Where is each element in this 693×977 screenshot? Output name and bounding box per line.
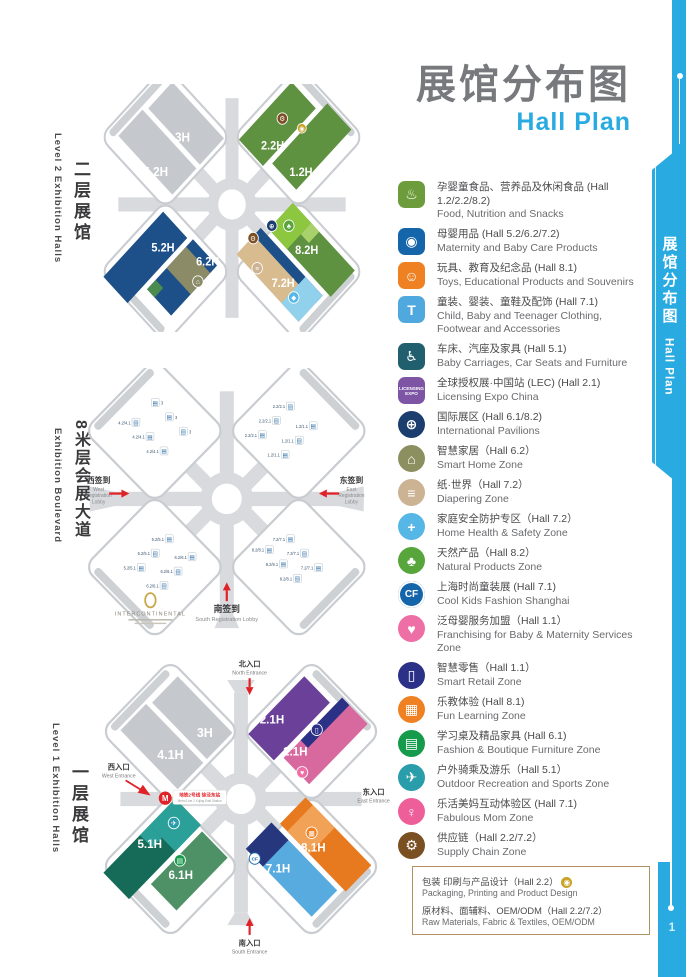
escalator-icon: ▤ <box>302 551 307 557</box>
legend-item-zh: 供应链（Hall 2.2/7.2） <box>437 832 543 846</box>
natural-products-icon: ♣ <box>398 547 425 574</box>
international-pavilions-icon: ⊕ <box>398 411 425 438</box>
legend-item-en: Cool Kids Fashion Shanghai <box>437 595 570 608</box>
escalator-chip-label: 6.2/6.1 <box>146 583 159 588</box>
smart-retail-icon: ▯ <box>398 662 425 689</box>
legend-item: ⊕ 国际展区 (Hall 6.1/8.2) International Pavi… <box>398 411 638 438</box>
legend-item-en: Baby Carriages, Car Seats and Furniture <box>437 357 627 370</box>
legend-item: ◉ 母婴用品 (Hall 5.2/6.2/7.2) Maternity and … <box>398 228 638 255</box>
escalator-chip-label: 7.2/7.1 <box>287 551 300 556</box>
footprint <box>99 660 381 940</box>
hall-label-3h: 3H <box>197 726 213 740</box>
legend-item-zh: 泛母婴服务加盟（Hall 1.1） <box>437 615 638 629</box>
legend-item-en: Toys, Educational Products and Souvenirs <box>437 276 634 289</box>
fun-learning-icon: ▦ <box>398 696 425 723</box>
legend-item: ✈ 户外骑乘及游乐（Hall 5.1） Outdoor Recreation a… <box>398 764 638 791</box>
page-title: 展馆分布图 Hall Plan <box>416 64 631 137</box>
escalator-icon: ▤ <box>260 433 265 439</box>
escalator-icon: ▤ <box>153 551 158 557</box>
hall-label-11h: 1.1H <box>283 744 308 758</box>
legend-item: ≡ 纸·世界（Hall 7.2） Diapering Zone <box>398 479 638 506</box>
hall-label-3h: 3H <box>175 130 190 145</box>
escalator-icon: ▤ <box>139 566 144 572</box>
east-registration-zh: 东签到 <box>340 475 364 485</box>
escalator-icon: ▤ <box>288 537 293 543</box>
metro-station-en: Metro Line 2 Xujing East Station <box>178 799 222 803</box>
food-icon: ♨ <box>398 181 425 208</box>
escalator-icon: ▤ <box>167 415 172 421</box>
south-registration-en: South Registration Lobby <box>195 617 258 623</box>
legend-item: ⌂ 智慧家居（Hall 6.2） Smart Home Zone <box>398 445 638 472</box>
supply-chain-icon: ⚙ <box>398 832 425 859</box>
materials-note-en: Raw Materials, Fabric & Textiles, OEM/OD… <box>422 917 640 927</box>
legend-item: + 家庭安全防护专区（Hall 7.2） Home Health & Safet… <box>398 513 638 540</box>
legend-item: ♿ 车床、汽座及家具 (Hall 5.1) Baby Carriages, Ca… <box>398 343 638 370</box>
legend-item-zh: 车床、汽座及家具 (Hall 5.1) <box>437 343 627 357</box>
hall-label-52h: 5.2H <box>151 242 174 255</box>
escalator-icon: ▤ <box>175 569 180 575</box>
escalator-icon: ▤ <box>288 404 293 410</box>
level2-label-en: Level 2 Exhibition Halls <box>52 133 63 263</box>
escalator-chip-label: 7.2/7.1 <box>301 566 314 571</box>
hall-label-42h: 4.2H <box>143 165 168 180</box>
hall-label-82h: 8.2H <box>295 245 318 258</box>
escalator-icon: ▤ <box>181 429 186 435</box>
escalator-chip-label: 4.2/4.1 <box>132 435 145 440</box>
escalator-icon: ▤ <box>161 449 166 455</box>
side-tab-en: Hall Plan <box>663 338 675 396</box>
svg-text:⌂: ⌂ <box>196 279 200 286</box>
svg-text:♣: ♣ <box>287 223 292 230</box>
level2-map: 3H 4.2H 2.2H 1.2H 5.2H 6.2H 8.2H 7.2H ⚙ … <box>94 84 370 332</box>
hall-label-72h: 7.2H <box>272 277 295 290</box>
legend-item-zh: 玩具、教育及纪念品 (Hall 8.1) <box>437 262 634 276</box>
svg-text:M: M <box>162 794 169 803</box>
level1-map: 3H 4.1H 2.1H 1.1H 5.1H 6.1H 8.1H 7.1H ▯ … <box>86 656 396 958</box>
escalator-chip-label: 4.2/4.1 <box>118 420 131 425</box>
clothing-icon: T <box>398 296 425 323</box>
legend-item-en: Franchising for Baby & Maternity Service… <box>437 629 638 655</box>
svg-text:✈: ✈ <box>171 821 177 828</box>
legend-item-zh: 全球授权展·中国站 (LEC) (Hall 2.1) <box>437 377 600 391</box>
side-strip-line <box>679 78 681 144</box>
escalator-icon: ▤ <box>161 584 166 590</box>
south-entrance-zh: 南入口 <box>239 937 261 947</box>
cool-kids-fashion-icon: CF <box>398 581 425 608</box>
hall-label-12h: 1.2H <box>289 167 312 180</box>
legend-item: ♣ 天然产品（Hall 8.2） Natural Products Zone <box>398 547 638 574</box>
legend-item-en: Smart Home Zone <box>437 459 536 472</box>
legend-item-en: International Pavilions <box>437 425 542 438</box>
escalator-chip-label: 2.2/2.1 <box>259 418 272 423</box>
hall-label-21h: 2.1H <box>260 712 285 726</box>
escalator-icon: ▤ <box>311 424 316 430</box>
svg-text:Lobby: Lobby <box>92 499 106 505</box>
escalator-chip-label: 1.2/1.1 <box>268 453 281 458</box>
legend-item-zh: 家庭安全防护专区（Hall 7.2） <box>437 513 578 527</box>
legend-item-zh: 智慧家居（Hall 6.2） <box>437 445 536 459</box>
svg-text:⚙: ⚙ <box>279 116 285 123</box>
svg-text:East: East <box>347 487 357 493</box>
svg-text:CF: CF <box>252 857 258 863</box>
maternity-care-icon: ◉ <box>398 228 425 255</box>
legend-item-zh: 孕婴童食品、营养品及休闲食品 (Hall 1.2/2.2/8.2) <box>437 181 638 208</box>
escalator-icon: ▤ <box>267 548 272 554</box>
legend-item: ☺ 玩具、教育及纪念品 (Hall 8.1) Toys, Educational… <box>398 262 638 289</box>
legend-item-zh: 母婴用品 (Hall 5.2/6.2/7.2) <box>437 228 598 242</box>
legend-item: ♨ 孕婴童食品、营养品及休闲食品 (Hall 1.2/2.2/8.2) Food… <box>398 181 638 221</box>
legend-items: ♨ 孕婴童食品、营养品及休闲食品 (Hall 1.2/2.2/8.2) Food… <box>398 181 638 859</box>
legend-item-en: Maternity and Baby Care Products <box>437 242 598 255</box>
legend-item: T 童装、婴装、童鞋及配饰 (Hall 7.1) Child, Baby and… <box>398 296 638 336</box>
level1-label-en: Level 1 Exhibition Halls <box>50 723 61 853</box>
escalator-icon: ▤ <box>316 566 321 572</box>
packaging-icon: ◉ <box>561 877 572 888</box>
legend-item-en: Supply Chain Zone <box>437 846 543 859</box>
svg-text:West: West <box>93 487 105 493</box>
legend: ♨ 孕婴童食品、营养品及休闲食品 (Hall 1.2/2.2/8.2) Food… <box>398 181 638 935</box>
packaging-note-en: Packaging, Printing and Product Design <box>422 888 640 898</box>
hall-label-41h: 4.1H <box>157 748 183 762</box>
outdoor-recreation-icon: ✈ <box>398 764 425 791</box>
svg-text:≡: ≡ <box>255 266 259 273</box>
legend-item-zh: 学习桌及精品家具 (Hall 6.1) <box>437 730 600 744</box>
svg-text:♥: ♥ <box>300 770 304 777</box>
escalator-chip-label: 2.2/2.1 <box>273 404 286 409</box>
west-entrance-zh: 西入口 <box>108 763 130 772</box>
hall-label-22h: 2.2H <box>261 140 284 153</box>
hall-label-62h: 6.2H <box>196 256 219 269</box>
svg-text:Registration: Registration <box>338 493 364 499</box>
legend-item-en: Fabulous Mom Zone <box>437 812 577 825</box>
escalator-icon: ▤ <box>189 555 194 561</box>
legend-item-zh: 乐教体验 (Hall 8.1) <box>437 696 526 710</box>
legend-item-en: Fashion & Boutique Furniture Zone <box>437 744 600 757</box>
hall-label-51h: 5.1H <box>137 837 162 851</box>
escalator-icon: ▤ <box>167 537 172 543</box>
hall-label-71h: 7.1H <box>266 862 291 876</box>
escalator-chip-label: 2.2/2.1 <box>245 433 258 438</box>
carriages-icon: ♿ <box>398 343 425 370</box>
level2-label-zh: 二层展馆 <box>68 160 93 244</box>
escalator-chip-label: 8.2/8.1 <box>280 576 293 581</box>
legend-item-en: Home Health & Safety Zone <box>437 527 578 540</box>
svg-text:▤: ▤ <box>177 858 184 865</box>
escalator-icon: ▤ <box>297 438 302 444</box>
hall-plan-page: 展馆分布图 Hall Plan Level 2 Exhibition Halls… <box>0 0 693 977</box>
hall-label-61h: 6.1H <box>168 868 193 882</box>
legend-item: LICENSING EXPO 全球授权展·中国站 (LEC) (Hall 2.1… <box>398 377 638 404</box>
escalator-chip-label: 5.2/5.1 <box>152 537 165 542</box>
legend-item: ⚙ 供应链（Hall 2.2/7.2） Supply Chain Zone <box>398 832 638 859</box>
legend-item: ▯ 智慧零售（Hall 1.1） Smart Retail Zone <box>398 662 638 689</box>
fabulous-mom-icon: ♀ <box>398 798 425 825</box>
escalator-chip-label: 6.2/6.1 <box>160 569 173 574</box>
escalator-chip-label: 5.2/5.1 <box>124 566 137 571</box>
legend-item-zh: 户外骑乘及游乐（Hall 5.1） <box>437 764 609 778</box>
legend-item-en: Licensing Expo China <box>437 391 600 404</box>
svg-text:◆: ◆ <box>291 295 297 302</box>
escalator-chip-label: 6.2/6.1 <box>174 555 187 560</box>
escalator-icon: ▤ <box>153 401 158 407</box>
north-entrance-zh: 北入口 <box>239 659 261 669</box>
legend-item-zh: 纸·世界（Hall 7.2） <box>437 479 529 493</box>
franchising-icon: ♥ <box>398 615 425 642</box>
page-title-zh: 展馆分布图 <box>416 64 631 106</box>
legend-item: ♀ 乐活美妈互动体验区 (Hall 7.1) Fabulous Mom Zone <box>398 798 638 825</box>
licensing-expo-icon: LICENSING EXPO <box>398 377 425 404</box>
legend-item-en: Natural Products Zone <box>437 561 542 574</box>
west-registration-zh: 西签到 <box>87 475 111 485</box>
legend-item-en: Outdoor Recreation and Sports Zone <box>437 778 609 791</box>
svg-text:⊕: ⊕ <box>269 223 274 230</box>
escalator-chip-label: 7.2/7.1 <box>273 537 286 542</box>
svg-text:▦: ▦ <box>308 830 315 837</box>
legend-item-zh: 天然产品（Hall 8.2） <box>437 547 542 561</box>
escalator-chip-label: 8.2/8.1 <box>266 562 279 567</box>
packaging-note-zh: 包装 印刷与产品设计（Hall 2.2）◉ <box>422 874 640 888</box>
escalator-icon: ▤ <box>147 435 152 441</box>
materials-note-zh: 原材料、面辅料、OEM/ODM（Hall 2.2/7.2） <box>422 903 640 917</box>
escalator-icon: ▤ <box>133 420 138 426</box>
boutique-furniture-icon: ▤ <box>398 730 425 757</box>
legend-item-en: Diapering Zone <box>437 493 529 506</box>
west-entrance-en: West Entrance <box>102 774 136 780</box>
page-number: 1 <box>658 922 686 934</box>
page-title-en: Hall Plan <box>416 108 631 137</box>
legend-item-en: Food, Nutrition and Snacks <box>437 208 638 221</box>
legend-item-zh: 国际展区 (Hall 6.1/8.2) <box>437 411 542 425</box>
escalator-chip-label: 1.2/1.1 <box>282 438 295 443</box>
boulevard-map: ▤3▤3▤3▤4.2/4.1▤4.2/4.1▤4.2/4.1▤2.2/2.1▤2… <box>60 368 376 646</box>
svg-text:⚙: ⚙ <box>250 236 256 243</box>
legend-note-box: 包装 印刷与产品设计（Hall 2.2）◉ Packaging, Printin… <box>412 866 650 935</box>
escalator-icon: ▤ <box>295 576 300 582</box>
escalator-chip-label: 4.2/4.1 <box>146 449 159 454</box>
home-safety-icon: + <box>398 513 425 540</box>
escalator-chip-label: 5.2/5.1 <box>138 551 151 556</box>
legend-item-en: Child, Baby and Teenager Clothing, Footw… <box>437 310 638 336</box>
escalator-icon: ▤ <box>282 453 287 459</box>
diapering-icon: ≡ <box>398 479 425 506</box>
escalator-chip-label: 8.2/8.1 <box>252 548 265 553</box>
legend-item-zh: 上海时尚童装展 (Hall 7.1) <box>437 581 570 595</box>
legend-item: CF 上海时尚童装展 (Hall 7.1) Cool Kids Fashion … <box>398 581 638 608</box>
legend-item: ▤ 学习桌及精品家具 (Hall 6.1) Fashion & Boutique… <box>398 730 638 757</box>
svg-text:▯: ▯ <box>315 727 319 734</box>
hall-label-81h: 8.1H <box>301 840 326 854</box>
svg-text:Lobby: Lobby <box>345 499 359 505</box>
escalator-icon: ▤ <box>281 562 286 568</box>
north-entrance-en: North Entrance <box>232 671 267 677</box>
escalator-chip-label: 1.2/1.1 <box>296 424 309 429</box>
escalator-icon: ▤ <box>274 419 279 425</box>
east-entrance-en: East Entrance <box>357 798 389 804</box>
svg-text:Registration: Registration <box>86 493 112 499</box>
legend-item-en: Fun Learning Zone <box>437 710 526 723</box>
east-entrance-zh: 东入口 <box>363 786 385 796</box>
south-entrance-en: South Entrance <box>232 949 268 955</box>
legend-item-zh: 童装、婴装、童鞋及配饰 (Hall 7.1) <box>437 296 638 310</box>
legend-item-zh: 智慧零售（Hall 1.1） <box>437 662 536 676</box>
south-registration-zh: 南签到 <box>214 603 240 614</box>
smart-home-icon: ⌂ <box>398 445 425 472</box>
legend-item: ▦ 乐教体验 (Hall 8.1) Fun Learning Zone <box>398 696 638 723</box>
svg-text:INTERCONTINENTAL: INTERCONTINENTAL <box>115 611 186 617</box>
legend-item-zh: 乐活美妈互动体验区 (Hall 7.1) <box>437 798 577 812</box>
side-bottom-block: 1 <box>658 862 686 977</box>
side-tab-zh: 展馆分布图 <box>661 236 678 326</box>
toys-icon: ☺ <box>398 262 425 289</box>
legend-item: ♥ 泛母婴服务加盟（Hall 1.1） Franchising for Baby… <box>398 615 638 655</box>
side-tab-hall-plan: 展馆分布图 Hall Plan <box>652 142 686 490</box>
legend-item-en: Smart Retail Zone <box>437 676 536 689</box>
svg-text:◉: ◉ <box>299 126 305 133</box>
